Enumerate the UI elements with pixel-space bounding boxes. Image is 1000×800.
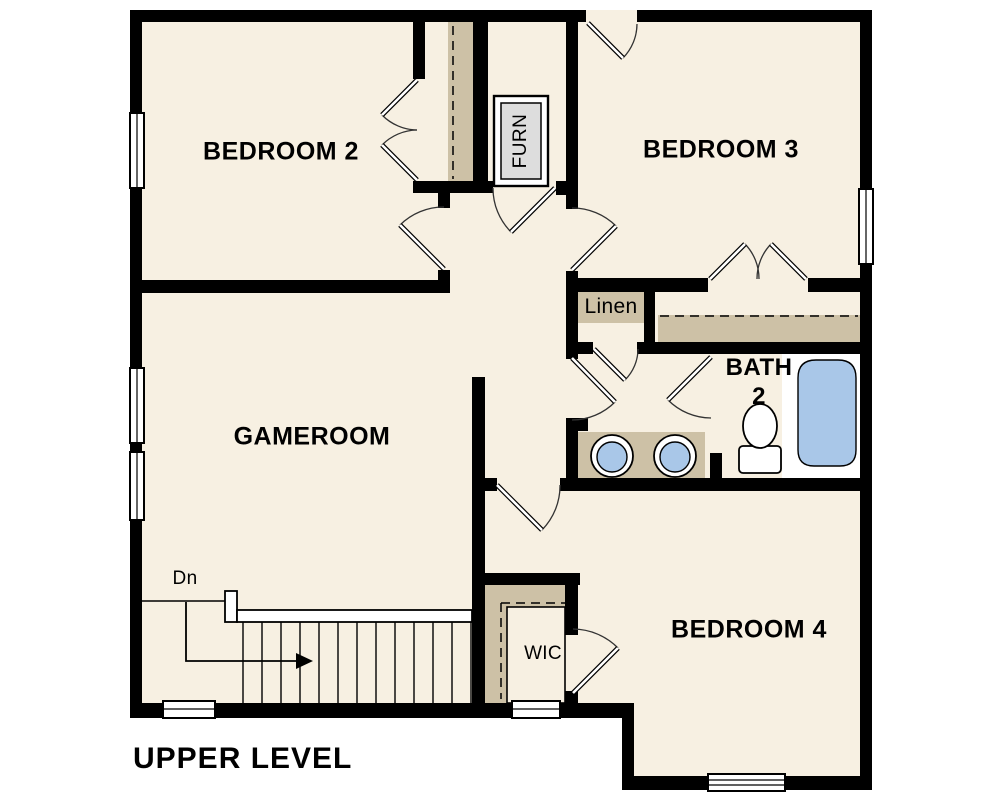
sink-right-basin <box>660 442 690 472</box>
label-bath-line1: BATH <box>726 354 793 382</box>
label-gameroom: GAMEROOM <box>234 423 391 452</box>
wall-wic-top <box>472 573 580 585</box>
wall-exterior-top-left <box>130 10 586 22</box>
bathtub-icon <box>798 360 856 466</box>
wall-bedroom2-door-jamb-top <box>438 193 450 208</box>
wall-linen-front <box>566 342 593 354</box>
window-bedroom3-right <box>859 189 873 264</box>
floor-plan: BEDROOM 2 BEDROOM 3 GAMEROOM BEDROOM 4 B… <box>0 0 1000 800</box>
wall-exterior-top-right <box>637 10 872 22</box>
toilet-tank <box>739 446 781 473</box>
wall-exterior-right <box>860 10 872 790</box>
page-title: UPPER LEVEL <box>133 742 352 776</box>
wall-toilet-divider <box>710 453 722 478</box>
label-linen: Linen <box>585 295 638 319</box>
label-furnace: FURN <box>510 114 532 169</box>
window-bedroom2-left <box>130 113 144 188</box>
wall-gameroom-right <box>472 377 485 703</box>
label-bedroom4: BEDROOM 4 <box>671 616 827 645</box>
wall-bedroom3-left <box>566 22 578 209</box>
stair-railing <box>237 610 472 622</box>
label-bath-line2: 2 <box>752 383 766 411</box>
bedroom2-closet-shelf <box>448 22 473 183</box>
label-wic: WIC <box>524 643 562 665</box>
wall-bedroom3-bottom-left <box>566 278 708 292</box>
wall-bedroom2-closet-base <box>413 181 493 193</box>
label-bedroom3: BEDROOM 3 <box>643 136 799 165</box>
window-bedroom4-bottom <box>708 774 785 791</box>
window-gameroom-left-2 <box>130 452 144 520</box>
label-bedroom2: BEDROOM 2 <box>203 138 359 167</box>
wall-bedroom2-closet-side <box>413 22 425 79</box>
wall-gameroom-top <box>130 280 450 293</box>
floor-plan-drawing <box>0 0 1000 800</box>
wall-wic-right <box>565 573 578 635</box>
stair-newel <box>225 591 237 622</box>
bedroom3-closet-shelf <box>658 315 860 342</box>
window-stairs-bottom <box>163 701 215 718</box>
wall-bath-south <box>560 478 862 491</box>
wall-landing-jamb <box>485 478 497 491</box>
wall-bedroom3-bottom-right <box>808 278 862 292</box>
sink-left-basin <box>597 442 627 472</box>
window-gameroom-left-1 <box>130 368 144 443</box>
wall-bath-north <box>637 342 862 354</box>
label-stairs-down: Dn <box>173 568 198 590</box>
window-wic-bottom <box>512 701 560 718</box>
wall-furnace-left <box>473 22 488 181</box>
